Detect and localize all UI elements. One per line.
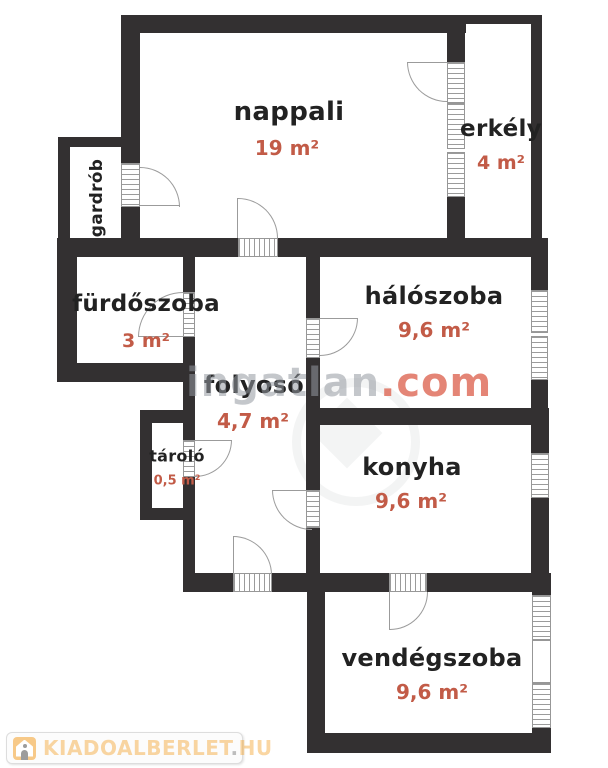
logo-separator: . bbox=[231, 736, 239, 760]
wall bbox=[140, 508, 195, 520]
house-icon-door bbox=[21, 750, 28, 760]
room-area-vendegszoba: 9,6 m² bbox=[396, 680, 468, 704]
wall bbox=[307, 573, 325, 753]
door-swing-arc bbox=[272, 490, 312, 530]
door-threshold bbox=[389, 573, 427, 592]
door-threshold bbox=[121, 163, 140, 207]
logo-text: KIADOALBERLET.HU bbox=[43, 736, 273, 760]
door-leaf bbox=[272, 490, 312, 491]
door-swing-arc bbox=[407, 62, 447, 102]
room-label-gardrob: gardrób bbox=[87, 159, 107, 238]
door-leaf bbox=[389, 592, 390, 630]
window-symbol bbox=[447, 152, 465, 197]
window-symbol bbox=[531, 336, 548, 380]
house-icon bbox=[13, 737, 36, 760]
wall bbox=[57, 363, 195, 382]
window-symbol bbox=[532, 683, 551, 728]
wall bbox=[183, 573, 233, 592]
door-threshold bbox=[447, 62, 465, 103]
room-label-erkely: erkély bbox=[460, 116, 542, 142]
logo-site-text: KIADOALBERLET bbox=[43, 736, 231, 760]
window-symbol bbox=[532, 640, 551, 683]
room-area-haloszoba: 9,6 m² bbox=[398, 318, 470, 342]
wall bbox=[121, 15, 466, 33]
door-leaf bbox=[407, 62, 447, 63]
watermark: ingatlan.com bbox=[186, 360, 492, 406]
logo-tld-text: HU bbox=[239, 736, 273, 760]
door-leaf bbox=[140, 205, 180, 206]
window-symbol bbox=[531, 453, 549, 498]
wall bbox=[307, 733, 551, 753]
door-leaf bbox=[195, 440, 232, 441]
wall bbox=[532, 573, 551, 595]
door-threshold bbox=[238, 238, 278, 257]
wall bbox=[317, 408, 548, 425]
wall bbox=[183, 238, 195, 292]
wall bbox=[447, 33, 465, 62]
watermark-accent-text: .com bbox=[380, 360, 492, 406]
watermark-gray-text: ingatlan bbox=[186, 360, 380, 406]
room-area-tarolo: 0,5 m² bbox=[154, 474, 201, 489]
door-swing-arc bbox=[140, 167, 180, 207]
floorplan: nappali 19 m² erkély 4 m² gardrób fürdős… bbox=[0, 0, 608, 768]
door-threshold bbox=[233, 573, 272, 592]
room-label-konyha: konyha bbox=[362, 453, 462, 481]
room-area-furdoszoba: 3 m² bbox=[122, 330, 170, 352]
window-symbol bbox=[532, 595, 551, 640]
door-leaf bbox=[320, 318, 358, 319]
wall bbox=[58, 137, 121, 147]
door-swing-arc bbox=[238, 198, 278, 238]
wall bbox=[121, 15, 140, 163]
room-label-tarolo: tároló bbox=[149, 447, 205, 466]
room-area-konyha: 9,6 m² bbox=[375, 489, 447, 513]
wall bbox=[531, 408, 549, 453]
wall bbox=[531, 247, 548, 290]
wall bbox=[57, 238, 238, 257]
door-leaf bbox=[233, 536, 234, 575]
room-label-vendegszoba: vendégszoba bbox=[341, 644, 522, 672]
window-symbol bbox=[531, 290, 548, 333]
door-swing-arc bbox=[320, 318, 358, 356]
wall bbox=[272, 573, 389, 592]
room-label-furdoszoba: fürdőszoba bbox=[72, 291, 220, 317]
room-area-nappali: 19 m² bbox=[255, 136, 319, 160]
room-area-folyoso: 4,7 m² bbox=[217, 409, 289, 433]
door-threshold bbox=[306, 318, 320, 358]
door-swing-arc bbox=[233, 536, 272, 575]
door-leaf bbox=[237, 198, 238, 238]
door-swing-arc bbox=[390, 592, 428, 630]
room-label-haloszoba: hálószoba bbox=[365, 282, 504, 310]
room-area-erkely: 4 m² bbox=[477, 152, 525, 174]
room-label-nappali: nappali bbox=[234, 97, 345, 127]
wall bbox=[306, 238, 320, 318]
site-logo: KIADOALBERLET.HU bbox=[6, 732, 243, 764]
house-icon-dot bbox=[23, 744, 27, 748]
